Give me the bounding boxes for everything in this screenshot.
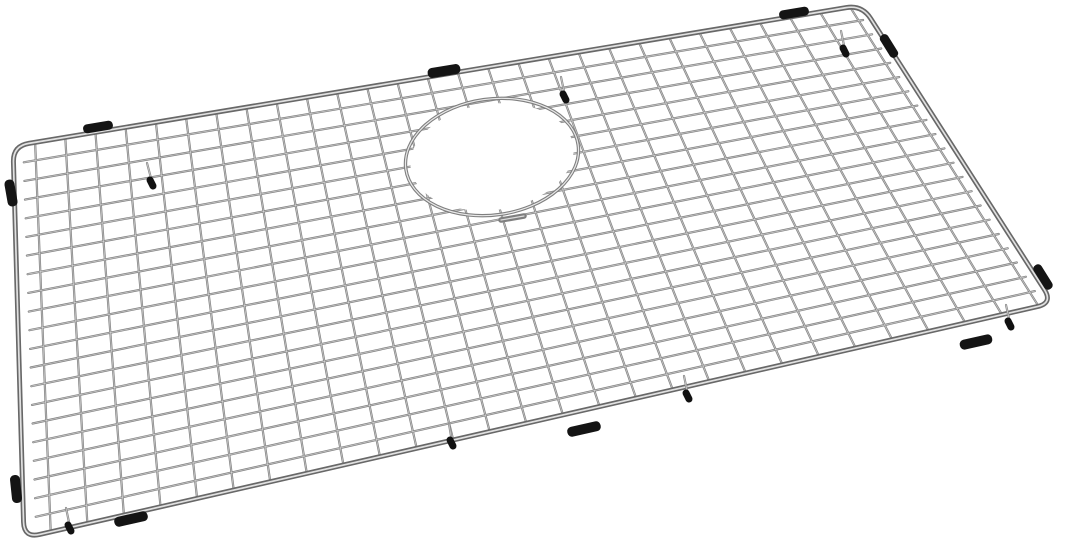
foot-tip: [150, 180, 153, 186]
photo-background: [0, 0, 1080, 549]
product-photo-sink-grid: [0, 0, 1080, 549]
foot-tip: [450, 440, 453, 446]
foot-tip: [843, 48, 846, 54]
foot-tip: [68, 525, 71, 531]
sink-grid-render-root: [0, 0, 1080, 549]
sink-grid-illustration: [0, 0, 1080, 549]
foot-tip: [1008, 321, 1011, 327]
foot-tip: [686, 393, 689, 399]
foot-tip: [563, 94, 566, 100]
